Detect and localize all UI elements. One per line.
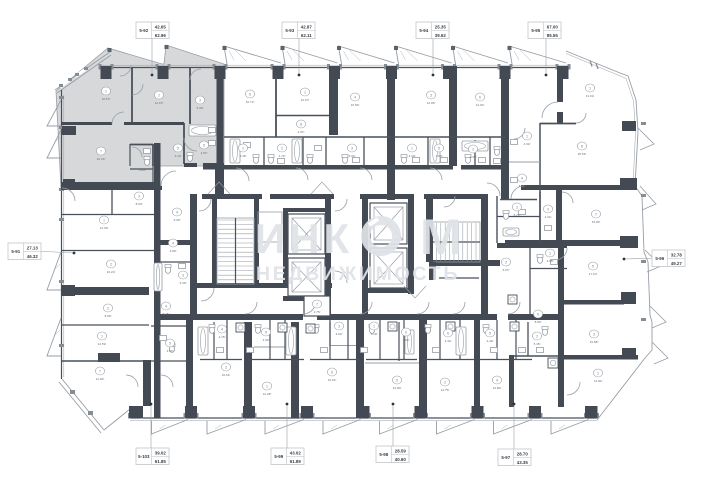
svg-text:27.13: 27.13 [27, 246, 39, 251]
svg-text:4: 4 [176, 210, 178, 214]
svg-text:1: 1 [304, 90, 306, 94]
svg-text:4.23²: 4.23² [519, 184, 526, 188]
svg-text:5.05²: 5.05² [174, 218, 181, 222]
svg-text:6: 6 [249, 92, 251, 96]
svg-text:5: 5 [169, 341, 171, 345]
svg-text:4: 4 [221, 327, 223, 331]
svg-text:49.27: 49.27 [671, 261, 683, 266]
svg-text:13.90²: 13.90² [594, 379, 603, 383]
svg-text:61.85: 61.85 [155, 459, 167, 464]
svg-text:8: 8 [300, 122, 302, 126]
svg-text:5.19²: 5.19² [371, 332, 378, 336]
svg-text:3: 3 [182, 273, 184, 277]
svg-text:39.62: 39.62 [435, 33, 447, 38]
svg-text:46.32: 46.32 [27, 254, 39, 259]
svg-text:25.53²: 25.53² [578, 152, 587, 156]
svg-text:12.30²: 12.30² [476, 103, 485, 107]
svg-text:12.90²: 12.90² [96, 377, 105, 381]
svg-text:4.80²: 4.80² [170, 249, 177, 253]
svg-text:4.92²: 4.92² [524, 142, 531, 146]
svg-text:4.42²: 4.42² [445, 339, 452, 343]
svg-text:5.45²: 5.45² [163, 312, 170, 316]
svg-text:5-103: 5-103 [138, 454, 150, 459]
svg-text:М: М [420, 209, 462, 265]
svg-text:28.70: 28.70 [517, 452, 529, 457]
svg-text:5-98: 5-98 [379, 452, 388, 457]
svg-text:2: 2 [472, 147, 474, 151]
svg-text:14.80²: 14.80² [493, 386, 502, 390]
svg-text:13.91²: 13.91² [586, 94, 595, 98]
svg-text:1: 1 [526, 134, 528, 138]
svg-text:ИНК: ИНК [255, 215, 353, 262]
svg-text:6: 6 [331, 370, 333, 374]
svg-text:3: 3 [138, 194, 140, 198]
svg-text:5-97: 5-97 [501, 455, 510, 460]
svg-text:1: 1 [373, 324, 375, 328]
svg-text:12.05²: 12.05² [427, 101, 436, 105]
svg-text:1: 1 [589, 86, 591, 90]
svg-text:5-95: 5-95 [531, 28, 540, 33]
svg-text:16.59²: 16.59² [351, 103, 360, 107]
svg-text:43.35: 43.35 [517, 460, 529, 465]
svg-text:6: 6 [405, 330, 407, 334]
svg-text:7: 7 [595, 212, 597, 216]
svg-text:8.60²: 8.60² [136, 202, 143, 206]
svg-text:4.31²: 4.31² [545, 215, 552, 219]
svg-text:4.30²: 4.30² [470, 155, 477, 159]
svg-text:5: 5 [489, 331, 491, 335]
svg-text:3.62²: 3.62² [403, 338, 410, 342]
svg-text:5: 5 [592, 264, 594, 268]
svg-text:5.39²: 5.39² [180, 281, 187, 285]
svg-text:5-94: 5-94 [419, 28, 428, 33]
svg-text:3: 3 [547, 207, 549, 211]
svg-text:12.39²: 12.39² [100, 226, 109, 230]
svg-text:2: 2 [107, 306, 109, 310]
svg-text:40.60: 40.60 [395, 457, 407, 462]
svg-text:32.78: 32.78 [671, 253, 683, 258]
svg-text:3: 3 [199, 98, 201, 102]
svg-text:16.71²: 16.71² [246, 100, 255, 104]
svg-text:4.07²: 4.07² [298, 130, 305, 134]
svg-text:5: 5 [396, 378, 398, 382]
svg-text:5.71²: 5.71² [514, 213, 521, 217]
svg-text:16.31²: 16.31² [97, 157, 106, 161]
svg-text:6: 6 [479, 95, 481, 99]
svg-text:2: 2 [158, 93, 160, 97]
svg-text:5.45²: 5.45² [534, 342, 541, 346]
svg-text:14.75²: 14.75² [441, 388, 450, 392]
svg-text:12.28²: 12.28² [263, 392, 272, 396]
svg-text:16.24²: 16.24² [107, 270, 116, 274]
svg-text:6.13²: 6.13² [175, 154, 182, 158]
svg-text:1: 1 [103, 218, 105, 222]
svg-text:5.67²: 5.67² [503, 268, 510, 272]
svg-text:2: 2 [110, 262, 112, 266]
svg-text:67.00: 67.00 [547, 25, 559, 30]
svg-text:5: 5 [438, 146, 440, 150]
svg-text:16.01²: 16.01² [328, 378, 337, 382]
svg-text:1: 1 [266, 384, 268, 388]
svg-text:61.89: 61.89 [290, 459, 302, 464]
svg-text:28.59: 28.59 [395, 449, 407, 454]
svg-text:5-96: 5-96 [655, 256, 664, 261]
svg-text:3: 3 [593, 332, 595, 336]
svg-text:43.02: 43.02 [290, 451, 302, 456]
svg-text:5-92: 5-92 [139, 28, 148, 33]
svg-text:4.62²: 4.62² [263, 338, 270, 342]
svg-text:5: 5 [177, 146, 179, 150]
svg-text:7: 7 [316, 302, 318, 306]
svg-text:3.00²: 3.00² [139, 168, 146, 172]
svg-text:3: 3 [351, 146, 353, 150]
svg-text:2: 2 [505, 260, 507, 264]
svg-text:4.97²: 4.97² [201, 151, 208, 155]
svg-text:85.55: 85.55 [547, 33, 559, 38]
svg-text:5-91: 5-91 [11, 249, 20, 254]
svg-text:8.53²: 8.53² [105, 314, 112, 318]
svg-text:6: 6 [203, 143, 205, 147]
svg-text:2.75²: 2.75² [314, 310, 321, 314]
svg-text:7: 7 [99, 369, 101, 373]
svg-text:2: 2 [536, 334, 538, 338]
svg-text:42.65: 42.65 [155, 25, 167, 30]
svg-text:6: 6 [447, 331, 449, 335]
svg-text:62.96: 62.96 [155, 33, 167, 38]
svg-text:2: 2 [225, 365, 227, 369]
svg-text:5.30²: 5.30² [197, 106, 204, 110]
svg-text:8.80²: 8.80² [535, 320, 542, 324]
svg-text:4: 4 [165, 304, 167, 308]
svg-text:1: 1 [411, 146, 413, 150]
svg-text:15.90²: 15.90² [592, 220, 601, 224]
svg-text:62.11: 62.11 [301, 33, 312, 38]
svg-text:5-99: 5-99 [274, 454, 283, 459]
svg-text:42.87: 42.87 [301, 25, 313, 30]
svg-text:4.15²: 4.15² [219, 335, 226, 339]
svg-text:3.97²: 3.97² [167, 349, 174, 353]
svg-text:4: 4 [172, 241, 174, 245]
svg-text:4.72²: 4.72² [279, 154, 286, 158]
svg-text:4.42²: 4.42² [487, 339, 494, 343]
svg-text:3.08²: 3.08² [547, 259, 554, 263]
svg-text:1: 1 [549, 251, 551, 255]
svg-text:12.59²: 12.59² [98, 342, 107, 346]
svg-text:2: 2 [281, 146, 283, 150]
svg-text:12.07²: 12.07² [301, 98, 310, 102]
svg-text:4.29²: 4.29² [409, 154, 416, 158]
svg-text:4.46²: 4.46² [240, 154, 247, 158]
svg-text:25.35: 25.35 [435, 25, 447, 30]
svg-text:5-93: 5-93 [285, 28, 294, 33]
svg-text:4: 4 [354, 95, 356, 99]
svg-text:1: 1 [101, 334, 103, 338]
svg-text:1: 1 [597, 371, 599, 375]
svg-text:7: 7 [100, 149, 102, 153]
svg-text:13.90²: 13.90² [393, 386, 402, 390]
svg-text:17.10²: 17.10² [589, 272, 598, 276]
svg-text:39.02: 39.02 [155, 451, 167, 456]
svg-text:4: 4 [496, 378, 498, 382]
svg-text:15.88²: 15.88² [590, 340, 599, 344]
svg-text:6: 6 [537, 312, 539, 316]
svg-text:3: 3 [338, 324, 340, 328]
svg-text:3: 3 [430, 93, 432, 97]
svg-text:8: 8 [581, 144, 583, 148]
svg-text:5: 5 [265, 330, 267, 334]
svg-text:12.97²: 12.97² [155, 101, 164, 105]
svg-text:3.04²: 3.04² [349, 154, 356, 158]
svg-text:2: 2 [444, 380, 446, 384]
svg-text:16.91²: 16.91² [222, 373, 231, 377]
svg-text:2: 2 [516, 205, 518, 209]
svg-text:3.62²: 3.62² [336, 332, 343, 336]
svg-text:НЕДВИЖИМОСТЬ: НЕДВИЖИМОСТЬ [256, 263, 460, 285]
svg-text:3.66²: 3.66² [436, 154, 443, 158]
svg-text:4: 4 [521, 176, 523, 180]
svg-text:1: 1 [242, 146, 244, 150]
svg-text:10.57²: 10.57² [102, 97, 111, 101]
svg-text:1: 1 [105, 89, 107, 93]
